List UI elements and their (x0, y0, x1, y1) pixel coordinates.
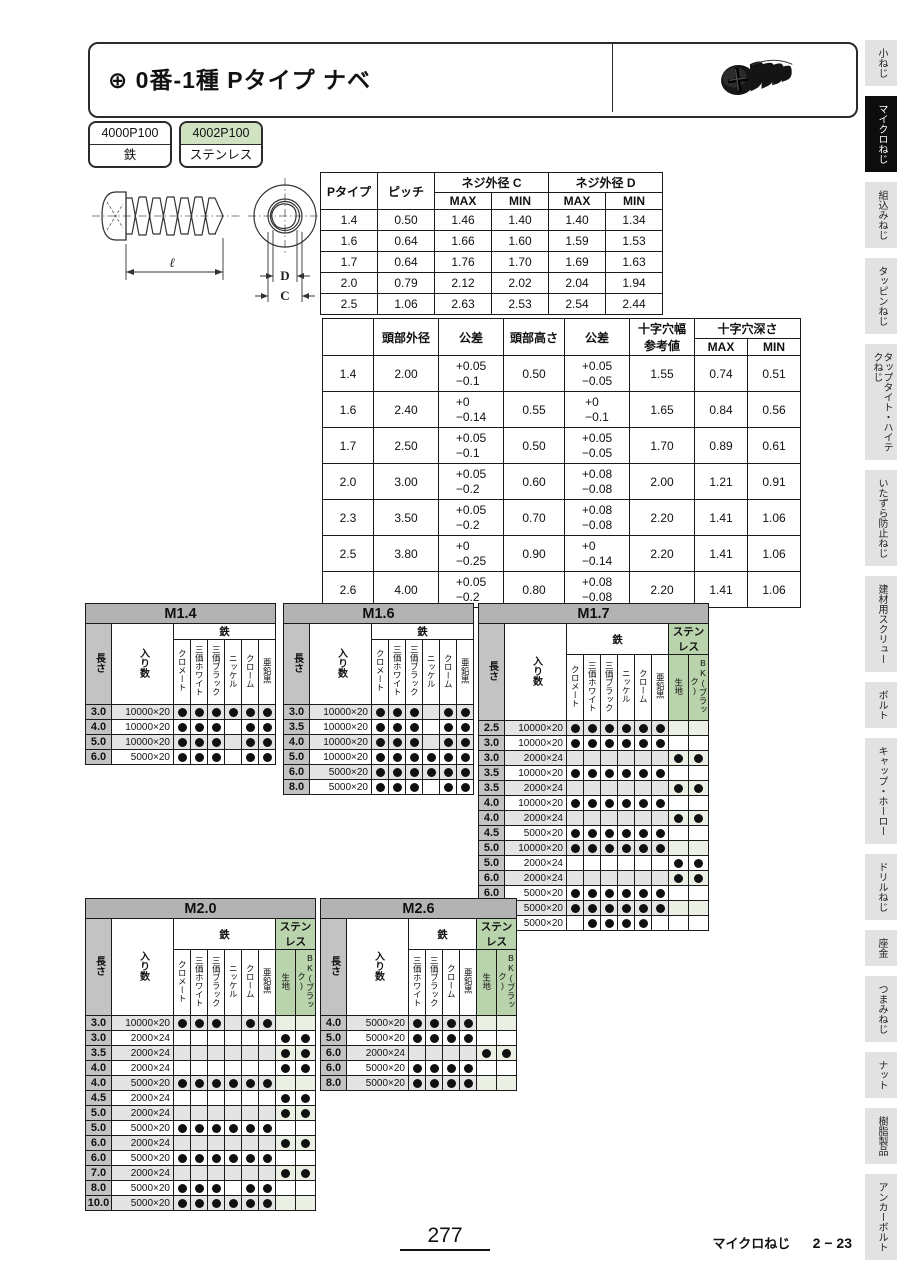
availability-dot (281, 1169, 290, 1178)
availability-dot (694, 874, 703, 883)
availability-dot (639, 724, 648, 733)
sidebar-tab-label: ナット (876, 1060, 886, 1090)
availability-cell (457, 780, 474, 795)
qty-value: 2000×24 (112, 1091, 174, 1106)
sidebar-tab-9[interactable]: キャップ・ホーロー (865, 738, 897, 844)
availability-cell (389, 705, 406, 720)
availability-cell (440, 780, 457, 795)
availability-dot (212, 1184, 221, 1193)
length-value: 4.5 (86, 1091, 112, 1106)
spec-tolerance: +0.05−0.2 (439, 500, 504, 536)
sidebar-tab-1[interactable]: 小ねじ (865, 40, 897, 86)
availability-cell (174, 705, 191, 720)
qty-value: 5000×20 (112, 1151, 174, 1166)
qty-value: 10000×20 (505, 841, 567, 856)
spec-value: 2.53 (492, 294, 549, 315)
col-header: 十字穴幅参考値 (630, 319, 695, 356)
length-col-header: 長さ (86, 624, 112, 705)
availability-cell (191, 720, 208, 735)
availability-dot (656, 799, 665, 808)
availability-cell (460, 1076, 477, 1091)
finish-col-header: ニッケル (225, 950, 242, 1016)
finish-col-header: 亜鉛黒 (460, 950, 477, 1016)
availability-dot (413, 1064, 422, 1073)
qty-value: 5000×20 (347, 1076, 409, 1091)
availability-cell (208, 1061, 225, 1076)
availability-cell (296, 1031, 316, 1046)
availability-dot (605, 889, 614, 898)
col-header: MIN (606, 193, 663, 210)
availability-cell (567, 751, 584, 766)
table-row: 6.02000×24 (479, 871, 709, 886)
availability-dot (413, 1079, 422, 1088)
availability-cell (225, 750, 242, 765)
table-row: 長さ入り数鉄ステンレス (86, 919, 316, 950)
availability-dot (263, 1019, 272, 1028)
spec-value: 0.89 (695, 428, 748, 464)
availability-dot (263, 708, 272, 717)
spec-value: 0.91 (748, 464, 801, 500)
availability-cell (423, 780, 440, 795)
availability-dot (263, 1199, 272, 1208)
table-row: 3.02000×24 (86, 1031, 316, 1046)
table-row: 2.53.80+0−0.250.90+0−0.142.201.411.06 (323, 536, 801, 572)
table-row: 5.02000×24 (86, 1106, 316, 1121)
iron-group-header: 鉄 (372, 624, 474, 640)
finish-col-header: 生地 (477, 950, 497, 1016)
iron-group-header: 鉄 (567, 624, 669, 655)
availability-dot (195, 738, 204, 747)
size-table-m2-0: M2.0長さ入り数鉄ステンレスクロメート三価ホワイト三価ブラックニッケルクローム… (85, 898, 316, 1211)
availability-dot (212, 1124, 221, 1133)
availability-cell (259, 1136, 276, 1151)
col-header: MIN (748, 339, 801, 356)
table-row: 3.52000×24 (86, 1046, 316, 1061)
availability-cell (652, 766, 669, 781)
screw-photo-icon (680, 50, 840, 110)
screw-diagram: ℓ D C (90, 168, 325, 318)
availability-dot (301, 1049, 310, 1058)
availability-cell (174, 1091, 191, 1106)
table-row: 2.00.792.122.022.041.94 (321, 273, 663, 294)
availability-cell (652, 886, 669, 901)
col-header: 頭部外径 (374, 319, 439, 356)
tolerance-line: −0.14 (582, 554, 612, 568)
availability-cell (372, 735, 389, 750)
qty-value: 5000×20 (310, 780, 372, 795)
sidebar-tab-13[interactable]: ナット (865, 1052, 897, 1098)
stainless-group-header: ステンレス (669, 624, 709, 655)
availability-dot (622, 829, 631, 838)
iron-group-header: 鉄 (174, 624, 276, 640)
size-table-m1-7: M1.7長さ入り数鉄ステンレスクロメート三価ホワイト三価ブラックニッケルクローム… (478, 603, 709, 931)
availability-cell (208, 1016, 225, 1031)
availability-cell (225, 1061, 242, 1076)
table-row: 長さ入り数鉄ステンレス (479, 624, 709, 655)
availability-cell (669, 916, 689, 931)
availability-cell (443, 1031, 460, 1046)
length-value: 3.0 (86, 1016, 112, 1031)
availability-cell (652, 736, 669, 751)
length-value: 6.0 (284, 765, 310, 780)
availability-cell (652, 796, 669, 811)
availability-cell (567, 841, 584, 856)
availability-cell (406, 765, 423, 780)
col-header: 公差 (439, 319, 504, 356)
availability-dot (281, 1094, 290, 1103)
availability-dot (656, 739, 665, 748)
availability-cell (584, 886, 601, 901)
sidebar-tab-3[interactable]: 組込みねじ (865, 182, 897, 248)
availability-dot (195, 1199, 204, 1208)
tolerance-values: +0−0.14 (582, 539, 612, 568)
availability-cell (296, 1136, 316, 1151)
availability-cell (652, 811, 669, 826)
spec-size: 2.0 (323, 464, 374, 500)
finish-col-header-text: クローム (639, 669, 648, 703)
tolerance-line: −0.2 (456, 482, 486, 496)
availability-cell (460, 1031, 477, 1046)
availability-cell (208, 1076, 225, 1091)
availability-cell (191, 1136, 208, 1151)
availability-cell (426, 1046, 443, 1061)
finish-col-header-text: 三価ホワイト (195, 956, 204, 1007)
availability-cell (174, 1181, 191, 1196)
iron-group-header: 鉄 (174, 919, 276, 950)
spec-value: 0.79 (378, 273, 435, 294)
tolerance-line: +0.05 (582, 359, 612, 373)
availability-dot (246, 753, 255, 762)
availability-dot (410, 738, 419, 747)
availability-cell (276, 1046, 296, 1061)
sidebar-tab-label: タッピンねじ (876, 266, 886, 326)
availability-cell (669, 811, 689, 826)
length-value: 4.0 (86, 1076, 112, 1091)
sidebar-tab-10[interactable]: ドリルねじ (865, 854, 897, 920)
finish-col-header-text: クロメート (376, 649, 385, 692)
qty-value: 10000×20 (310, 705, 372, 720)
tolerance-line: −0.08 (582, 518, 612, 532)
sidebar-tab-label: タップタイト・ハイテクねじ (871, 352, 891, 452)
table-row: 10.05000×20 (86, 1196, 316, 1211)
availability-dot (588, 919, 597, 928)
qty-value: 10000×20 (505, 721, 567, 736)
length-value: 6.0 (86, 750, 112, 765)
qty-value: 2000×24 (505, 781, 567, 796)
availability-dot (588, 799, 597, 808)
tolerance-values: +0.08−0.08 (582, 467, 612, 496)
availability-dot (393, 723, 402, 732)
availability-dot (674, 814, 683, 823)
spec-value: 1.06 (378, 294, 435, 315)
table-row: 3.02000×24 (479, 751, 709, 766)
availability-cell (296, 1166, 316, 1181)
table-row: 1.72.50+0.05−0.10.50+0.05−0.051.700.890.… (323, 428, 801, 464)
table-row: 8.05000×20 (86, 1181, 316, 1196)
qty-value: 10000×20 (505, 736, 567, 751)
availability-cell (426, 1016, 443, 1031)
availability-dot (178, 1079, 187, 1088)
availability-cell (635, 841, 652, 856)
availability-cell (225, 705, 242, 720)
spec-value: 0.60 (504, 464, 565, 500)
tolerance-line: +0.05 (456, 503, 486, 517)
availability-cell (669, 751, 689, 766)
availability-cell (208, 1136, 225, 1151)
finish-col-header-text: 亜鉛黒 (656, 673, 665, 699)
availability-cell (191, 1151, 208, 1166)
table-row: 3.010000×20 (86, 1016, 316, 1031)
availability-cell (457, 720, 474, 735)
length-value: 6.0 (86, 1136, 112, 1151)
length-value: 4.5 (479, 826, 505, 841)
availability-cell (584, 871, 601, 886)
availability-cell (443, 1046, 460, 1061)
availability-cell (225, 1016, 242, 1031)
spec-tolerance: +0.08−0.08 (565, 464, 630, 500)
availability-cell (208, 735, 225, 750)
finish-col-header-text: BK(ブラック) (498, 950, 515, 1012)
sidebar-tab-8[interactable]: ボルト (865, 682, 897, 728)
availability-dot (605, 769, 614, 778)
thread-od-spec-table: Pタイプピッチネジ外径 Cネジ外径 DMAXMINMAXMIN1.40.501.… (320, 172, 663, 315)
finish-col-header-text: クローム (444, 654, 453, 688)
availability-cell (225, 1091, 242, 1106)
table-row: 4.05000×20 (321, 1016, 517, 1031)
availability-cell (276, 1151, 296, 1166)
spec-size: 1.7 (323, 428, 374, 464)
availability-cell (689, 796, 709, 811)
availability-cell (477, 1046, 497, 1061)
length-value: 4.0 (284, 735, 310, 750)
availability-dot (464, 1019, 473, 1028)
availability-cell (618, 751, 635, 766)
length-col-header-text: 長さ (487, 661, 497, 681)
sidebar-tab-6[interactable]: いたずら防止ねじ (865, 470, 897, 566)
finish-col-header-text: クロメート (571, 665, 580, 708)
col-header: ネジ外径 C (435, 173, 549, 193)
availability-cell (296, 1151, 316, 1166)
availability-dot (246, 1124, 255, 1133)
availability-dot (178, 708, 187, 717)
availability-dot (447, 1064, 456, 1073)
availability-cell (276, 1031, 296, 1046)
page-number: 277 (400, 1224, 490, 1251)
qty-col-header: 入り数 (347, 919, 409, 1016)
availability-dot (639, 904, 648, 913)
availability-dot (263, 1079, 272, 1088)
spec-value: 1.40 (549, 210, 606, 231)
availability-cell (601, 856, 618, 871)
qty-value: 2000×24 (505, 871, 567, 886)
sidebar-tab-7[interactable]: 建材用スクリュー (865, 576, 897, 672)
length-value: 8.0 (284, 780, 310, 795)
availability-cell (174, 735, 191, 750)
availability-cell (174, 1046, 191, 1061)
availability-dot (393, 708, 402, 717)
availability-cell (567, 811, 584, 826)
table-row: 5.010000×20 (479, 841, 709, 856)
table-row: M2.0 (86, 899, 316, 919)
tolerance-line: −0.2 (456, 590, 486, 604)
finish-col-header: 亜鉛黒 (259, 950, 276, 1016)
availability-cell (457, 765, 474, 780)
availability-dot (461, 723, 470, 732)
length-value: 6.0 (86, 1151, 112, 1166)
availability-cell (242, 1136, 259, 1151)
finish-col-header-text: 三価ブラック (212, 645, 221, 696)
availability-cell (242, 1196, 259, 1211)
sidebar-tab-4[interactable]: タッピンねじ (865, 258, 897, 334)
sidebar-tab-15[interactable]: アンカーボルト (865, 1174, 897, 1260)
availability-cell (225, 1136, 242, 1151)
availability-dot (588, 739, 597, 748)
availability-cell (225, 1076, 242, 1091)
availability-cell (584, 826, 601, 841)
availability-cell (174, 750, 191, 765)
tolerance-line: −0.14 (456, 410, 486, 424)
availability-dot (410, 768, 419, 777)
table-row: 長さ入り数鉄ステンレス (321, 919, 517, 950)
table-row: 1.40.501.461.401.401.34 (321, 210, 663, 231)
availability-dot (430, 1064, 439, 1073)
qty-value: 10000×20 (505, 766, 567, 781)
availability-cell (689, 721, 709, 736)
availability-dot (571, 799, 580, 808)
availability-cell (174, 1166, 191, 1181)
availability-cell (584, 841, 601, 856)
availability-dot (444, 723, 453, 732)
qty-value: 10000×20 (310, 735, 372, 750)
availability-cell (584, 811, 601, 826)
availability-cell (584, 766, 601, 781)
availability-cell (276, 1121, 296, 1136)
availability-cell (208, 1091, 225, 1106)
spec-size: 2.3 (323, 500, 374, 536)
spec-value: 2.12 (435, 273, 492, 294)
availability-dot (393, 783, 402, 792)
finish-col-header-text: ニッケル (622, 669, 631, 703)
availability-dot (376, 753, 385, 762)
availability-cell (191, 1076, 208, 1091)
col-header: MAX (695, 339, 748, 356)
col-header: ネジ外径 D (549, 173, 663, 193)
col-header: MAX (549, 193, 606, 210)
availability-dot (461, 708, 470, 717)
availability-cell (225, 720, 242, 735)
spec-value: 3.00 (374, 464, 439, 500)
availability-dot (263, 723, 272, 732)
spec-value: 1.46 (435, 210, 492, 231)
availability-dot (674, 859, 683, 868)
tolerance-line: −0.1 (456, 374, 486, 388)
availability-dot (195, 1124, 204, 1133)
tolerance-values: +0.05−0.2 (456, 503, 486, 532)
availability-cell (601, 751, 618, 766)
availability-cell (689, 856, 709, 871)
availability-cell (225, 1196, 242, 1211)
availability-cell (242, 1106, 259, 1121)
availability-cell (601, 841, 618, 856)
table-row: 4.010000×20 (479, 796, 709, 811)
sidebar-tab-11[interactable]: 座金 (865, 930, 897, 966)
qty-col-header-text: 入り数 (373, 951, 383, 981)
size-table-m2-6: M2.6長さ入り数鉄ステンレス三価ホワイト三価ブラッククローム亜鉛黒生地BK(ブ… (320, 898, 517, 1091)
availability-cell (191, 750, 208, 765)
spec-value: 1.6 (321, 231, 378, 252)
availability-cell (689, 751, 709, 766)
iron-group-header: 鉄 (409, 919, 477, 950)
availability-dot (195, 753, 204, 762)
availability-dot (656, 889, 665, 898)
spec-tolerance: +0−0.14 (565, 536, 630, 572)
length-value: 3.0 (479, 736, 505, 751)
sidebar-tab-12[interactable]: つまみねじ (865, 976, 897, 1042)
availability-dot (263, 1124, 272, 1133)
availability-cell (276, 1106, 296, 1121)
length-value: 3.0 (479, 751, 505, 766)
availability-dot (674, 784, 683, 793)
availability-dot (376, 738, 385, 747)
length-value: 4.0 (86, 720, 112, 735)
spec-value: 1.65 (630, 392, 695, 428)
spec-value: 0.64 (378, 231, 435, 252)
spec-value: 1.69 (549, 252, 606, 273)
availability-cell (259, 1031, 276, 1046)
availability-cell (567, 916, 584, 931)
availability-cell (689, 886, 709, 901)
length-value: 3.0 (86, 1031, 112, 1046)
page-header: ⊕ 0番-1種 Pタイプ ナベ (88, 42, 858, 118)
availability-cell (652, 721, 669, 736)
qty-col-header: 入り数 (112, 919, 174, 1016)
qty-value: 2000×24 (112, 1136, 174, 1151)
availability-cell (259, 1106, 276, 1121)
availability-dot (413, 1019, 422, 1028)
table-row: 2.03.00+0.05−0.20.60+0.08−0.082.001.210.… (323, 464, 801, 500)
availability-cell (601, 886, 618, 901)
availability-cell (259, 735, 276, 750)
size-table: M2.6長さ入り数鉄ステンレス三価ホワイト三価ブラッククローム亜鉛黒生地BK(ブ… (320, 898, 517, 1091)
sidebar-tab-2[interactable]: マイクロねじ (865, 96, 897, 172)
availability-cell (406, 720, 423, 735)
table-row: 5.010000×20 (284, 750, 474, 765)
tolerance-line: −0.05 (582, 446, 612, 460)
availability-dot (622, 904, 631, 913)
availability-cell (276, 1166, 296, 1181)
sidebar-tab-label: 小ねじ (876, 48, 886, 78)
availability-cell (618, 826, 635, 841)
finish-col-header-text: クローム (447, 964, 456, 998)
availability-dot (195, 723, 204, 732)
availability-dot (178, 1199, 187, 1208)
finish-col-header-text: 亜鉛黒 (263, 658, 272, 684)
availability-dot (588, 829, 597, 838)
tolerance-values: +0.08−0.08 (582, 575, 612, 604)
col-header-line: 参考値 (633, 337, 691, 354)
tolerance-line: +0.05 (456, 431, 486, 445)
sidebar-tab-14[interactable]: 樹脂製品 (865, 1108, 897, 1164)
spec-value: 1.76 (435, 252, 492, 273)
availability-cell (652, 781, 669, 796)
length-value: 3.5 (479, 781, 505, 796)
availability-cell (567, 796, 584, 811)
availability-cell (426, 1061, 443, 1076)
sidebar-tab-5[interactable]: タップタイト・ハイテクねじ (865, 344, 897, 460)
size-table-title: M1.7 (479, 604, 709, 624)
tolerance-values: +0−0.14 (456, 395, 486, 424)
spec-tolerance: +0.05−0.1 (439, 428, 504, 464)
